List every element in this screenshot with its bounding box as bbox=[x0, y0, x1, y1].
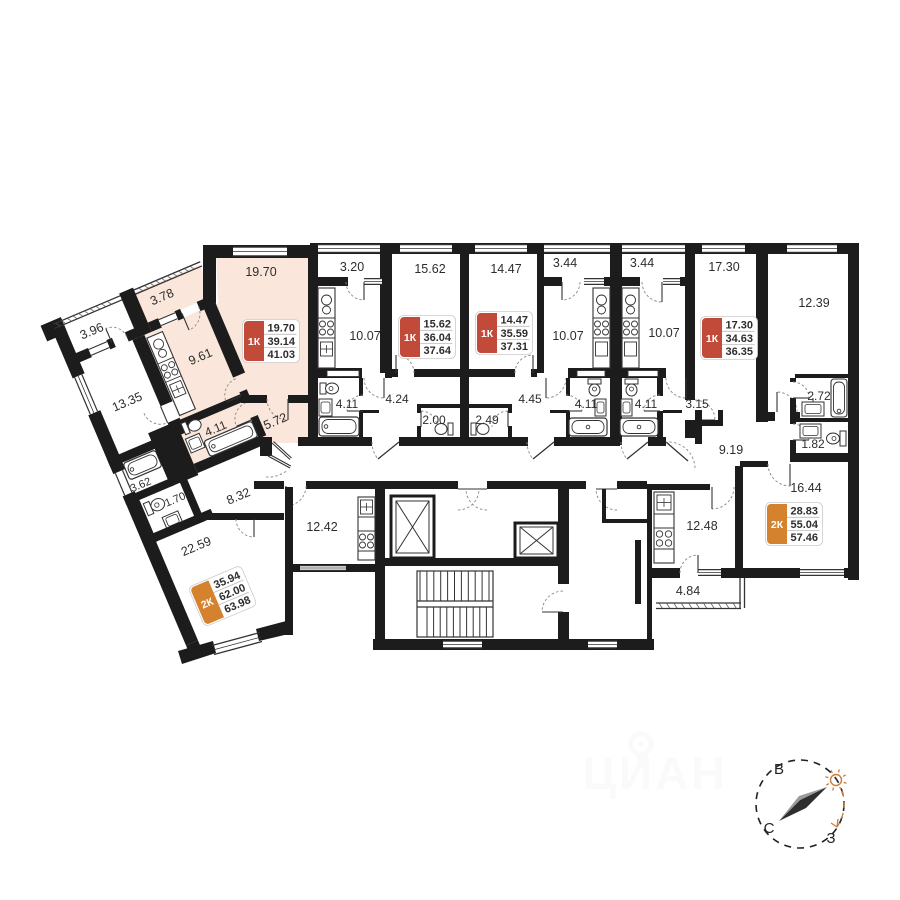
svg-text:С: С bbox=[764, 820, 775, 837]
svg-text:41.03: 41.03 bbox=[267, 349, 295, 361]
svg-text:4.84: 4.84 bbox=[676, 584, 700, 598]
svg-text:З: З bbox=[826, 830, 835, 847]
svg-text:16.44: 16.44 bbox=[790, 481, 821, 495]
svg-text:34.63: 34.63 bbox=[725, 333, 753, 345]
svg-text:12.48: 12.48 bbox=[686, 519, 717, 533]
svg-text:37.64: 37.64 bbox=[423, 345, 451, 357]
svg-text:28.83: 28.83 bbox=[790, 506, 818, 518]
svg-text:14.47: 14.47 bbox=[490, 262, 521, 276]
svg-text:10.07: 10.07 bbox=[552, 329, 583, 343]
svg-text:36.04: 36.04 bbox=[423, 332, 451, 344]
svg-text:12.39: 12.39 bbox=[798, 296, 829, 310]
svg-text:2.49: 2.49 bbox=[475, 413, 499, 427]
svg-text:14.47: 14.47 bbox=[500, 315, 528, 327]
svg-text:2.72: 2.72 bbox=[807, 389, 831, 403]
svg-text:57.46: 57.46 bbox=[790, 532, 818, 544]
svg-text:12.42: 12.42 bbox=[306, 520, 337, 534]
svg-text:1К: 1К bbox=[706, 333, 719, 345]
svg-text:4.11: 4.11 bbox=[635, 397, 658, 411]
svg-text:3.44: 3.44 bbox=[553, 256, 577, 270]
svg-text:17.30: 17.30 bbox=[708, 260, 739, 274]
svg-text:4.24: 4.24 bbox=[385, 392, 409, 406]
svg-text:19.70: 19.70 bbox=[267, 323, 295, 335]
svg-text:В: В bbox=[774, 761, 784, 778]
svg-text:4.45: 4.45 bbox=[518, 392, 542, 406]
svg-text:55.04: 55.04 bbox=[790, 519, 818, 531]
svg-text:1К: 1К bbox=[481, 328, 494, 340]
svg-text:9.19: 9.19 bbox=[719, 443, 743, 457]
svg-text:2К: 2К bbox=[771, 519, 784, 531]
svg-text:1К: 1К bbox=[404, 332, 417, 344]
svg-text:3.15: 3.15 bbox=[685, 397, 709, 411]
svg-text:4.11: 4.11 bbox=[336, 397, 359, 411]
svg-text:3.20: 3.20 bbox=[340, 260, 364, 274]
svg-text:37.31: 37.31 bbox=[500, 341, 528, 353]
svg-text:10.07: 10.07 bbox=[349, 329, 380, 343]
svg-text:19.70: 19.70 bbox=[245, 265, 276, 279]
svg-text:ЦИАН: ЦИАН bbox=[582, 747, 727, 799]
svg-text:39.14: 39.14 bbox=[267, 336, 295, 348]
svg-text:1К: 1К bbox=[248, 336, 261, 348]
svg-text:1.82: 1.82 bbox=[801, 437, 825, 451]
svg-text:4.11: 4.11 bbox=[575, 397, 598, 411]
svg-text:36.35: 36.35 bbox=[725, 346, 753, 358]
svg-text:15.62: 15.62 bbox=[423, 319, 451, 331]
svg-text:15.62: 15.62 bbox=[414, 262, 445, 276]
svg-text:35.59: 35.59 bbox=[500, 328, 528, 340]
svg-text:3.44: 3.44 bbox=[630, 256, 654, 270]
svg-text:2.00: 2.00 bbox=[422, 413, 446, 427]
svg-text:17.30: 17.30 bbox=[725, 320, 753, 332]
svg-text:10.07: 10.07 bbox=[648, 326, 679, 340]
